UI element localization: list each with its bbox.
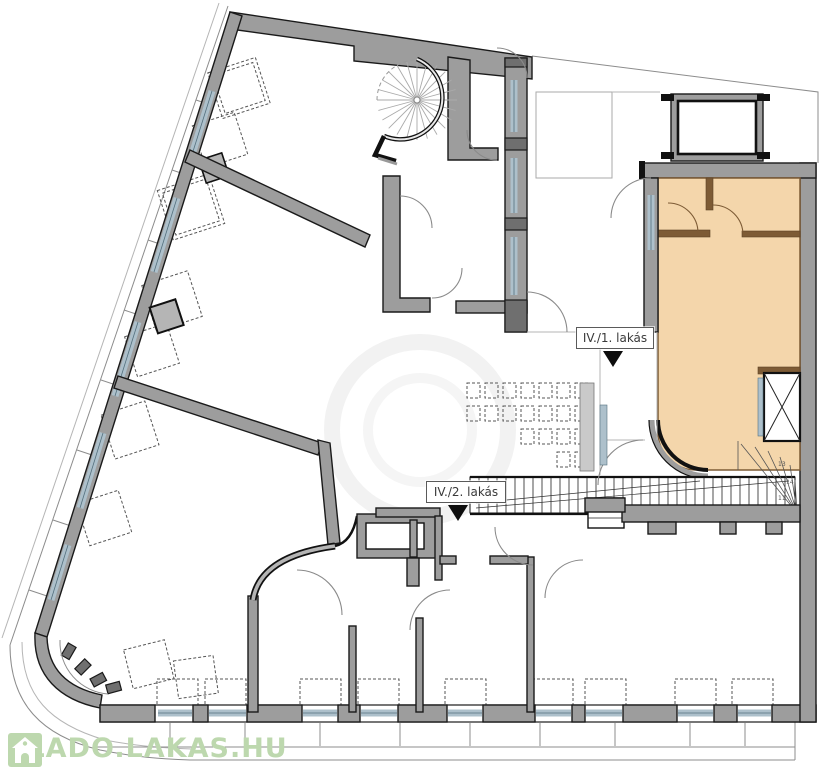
apartment-1-marker-icon[interactable] — [603, 351, 623, 367]
watermark-text: ELADO.LAKAS.HU — [8, 733, 288, 764]
floor-plan: 13 14 11 IV./1. lakás IV./2. lakás — [0, 0, 829, 768]
unit-label-apartment-2[interactable]: IV./2. lakás — [426, 481, 506, 503]
house-icon — [8, 733, 42, 767]
floor-plan-drawing: 13 14 11 — [0, 0, 829, 768]
apartment-entry-wall — [611, 178, 658, 332]
stair-number: 13 — [778, 461, 786, 468]
spiral-staircase — [375, 59, 457, 164]
stair-number: 14 — [786, 479, 794, 486]
watermark: ELADO.LAKAS.HU — [8, 733, 288, 764]
bottom-wall — [100, 705, 816, 722]
apartment-2-marker-icon[interactable] — [448, 505, 468, 521]
window-pier-column — [505, 58, 527, 332]
gallery-hatch — [467, 383, 594, 471]
unit-label-apartment-1[interactable]: IV./1. lakás — [576, 327, 654, 349]
elevator-shaft — [758, 373, 800, 441]
stair-number: 11 — [778, 495, 786, 502]
light-shaft — [661, 94, 770, 161]
